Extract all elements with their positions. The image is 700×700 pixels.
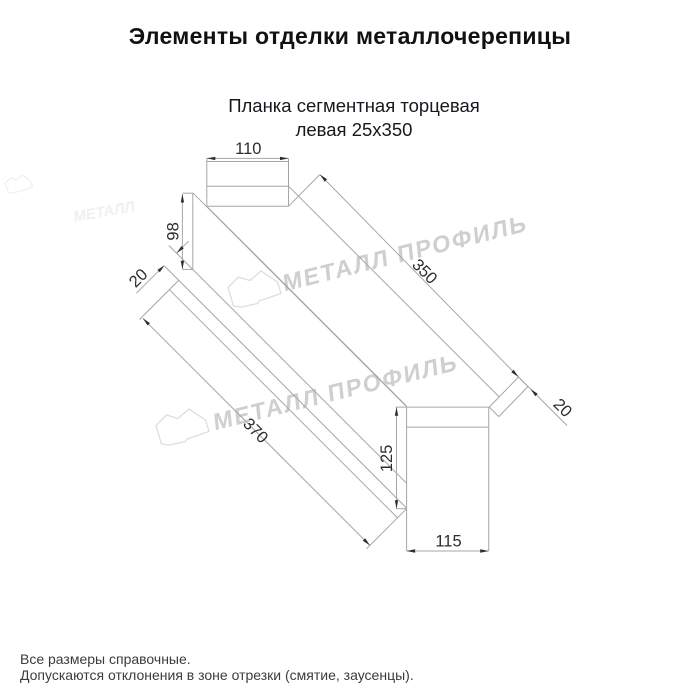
- svg-text:20: 20: [126, 266, 152, 292]
- svg-text:МЕТАЛЛ: МЕТАЛЛ: [74, 198, 136, 226]
- svg-text:98: 98: [164, 222, 182, 240]
- svg-text:110: 110: [235, 140, 261, 158]
- svg-text:МЕТАЛЛ ПРОФИЛЬ: МЕТАЛЛ ПРОФИЛЬ: [282, 211, 527, 297]
- svg-text:115: 115: [435, 533, 461, 551]
- svg-text:20: 20: [550, 395, 576, 421]
- svg-text:125: 125: [378, 445, 396, 473]
